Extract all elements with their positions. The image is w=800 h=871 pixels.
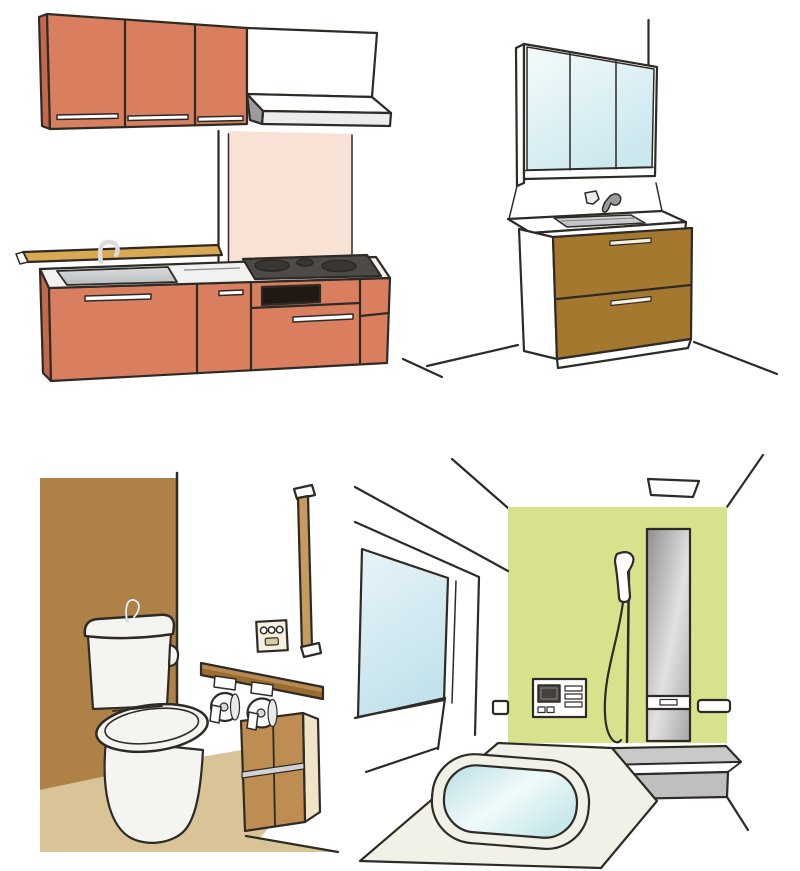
ceiling [452, 455, 763, 508]
column-shelf-detail [660, 700, 677, 706]
burner [322, 261, 356, 272]
vanity-faucet [585, 191, 621, 212]
paper-flap [210, 705, 221, 723]
roll-holder [214, 676, 236, 690]
grab-bar-rail [298, 496, 312, 650]
base-door-handle [219, 290, 243, 296]
bath-control-panel [533, 679, 586, 717]
tank-side-button [169, 645, 178, 666]
faucet-spout [585, 191, 599, 204]
kitchen-sink [57, 267, 177, 285]
wall-cabinet-handle [198, 116, 243, 122]
toilet-illustration [15, 450, 345, 871]
burner [255, 260, 289, 271]
control-panel-body [256, 620, 288, 652]
bath-water [442, 763, 580, 840]
window-sill-end [438, 698, 445, 749]
panel-key-small [538, 707, 545, 713]
toilet-control-panel [256, 620, 288, 652]
paper-roll-side [231, 694, 240, 720]
kitchen-backsplash [219, 131, 353, 263]
hood-front-band [262, 111, 391, 126]
panel-key-small [547, 707, 554, 713]
bathtub-basin [429, 751, 592, 852]
kitchen-illustration [0, 0, 450, 420]
kitchen-base-cabinet [40, 242, 390, 381]
wall-cabinet-handle [128, 115, 188, 121]
bathtub [360, 743, 657, 868]
panel-key [565, 702, 582, 707]
grab-bar-end [493, 701, 508, 714]
floor-corner-line-left [427, 345, 518, 366]
panel-key [565, 694, 582, 699]
ceiling-vent [648, 479, 699, 497]
roll-holder [251, 682, 273, 696]
mirror-cabinet-side [516, 44, 524, 186]
backsplash-panel [228, 131, 352, 263]
window-frame-inner [452, 581, 456, 703]
towel-bar-right [698, 700, 730, 712]
shower-column [647, 529, 690, 741]
ceiling-corner-line-left [452, 459, 508, 508]
wall-cabinet-handle [57, 114, 118, 120]
tank-lid [85, 615, 174, 638]
burner [297, 259, 313, 266]
illustration-grid [0, 0, 800, 871]
panel-button [268, 627, 275, 634]
hood-back-panel [247, 28, 377, 97]
panel-key [565, 686, 582, 691]
vanity-cabinet [519, 228, 692, 368]
toilet-bowl [105, 740, 203, 843]
kitchen-wall-cabinet [39, 14, 247, 129]
floor-corner-line [727, 797, 748, 830]
panel-button-wide [265, 638, 278, 646]
paper-holder-cabinet [241, 713, 320, 831]
window-sill-bottom [366, 748, 437, 772]
cabinet-left-edge [509, 186, 517, 219]
window [355, 522, 479, 772]
rear-ledge [23, 245, 222, 262]
vanity-cabinet-front [553, 228, 692, 359]
cabinet-right-edge [656, 183, 662, 211]
floor-corner-line-right [694, 342, 777, 374]
grab-bar [294, 485, 321, 657]
grill-opening [262, 285, 320, 305]
panel-button [260, 627, 267, 634]
toilet-tank [88, 632, 171, 709]
panel-button [276, 626, 283, 633]
range-hood [247, 28, 391, 126]
wall-cabinet-front [47, 14, 247, 129]
paper-flap [247, 712, 258, 730]
window-glass [358, 549, 448, 717]
mirror-glass [527, 47, 654, 170]
base-drawer-handle [85, 294, 151, 301]
bathroom-illustration [350, 455, 800, 871]
ceiling-corner-line-right [727, 455, 763, 507]
faucet-handle [602, 194, 620, 212]
vanity-illustration [390, 15, 800, 395]
vanity-cabinet-side [519, 229, 557, 359]
paper-roll-side [268, 700, 277, 727]
